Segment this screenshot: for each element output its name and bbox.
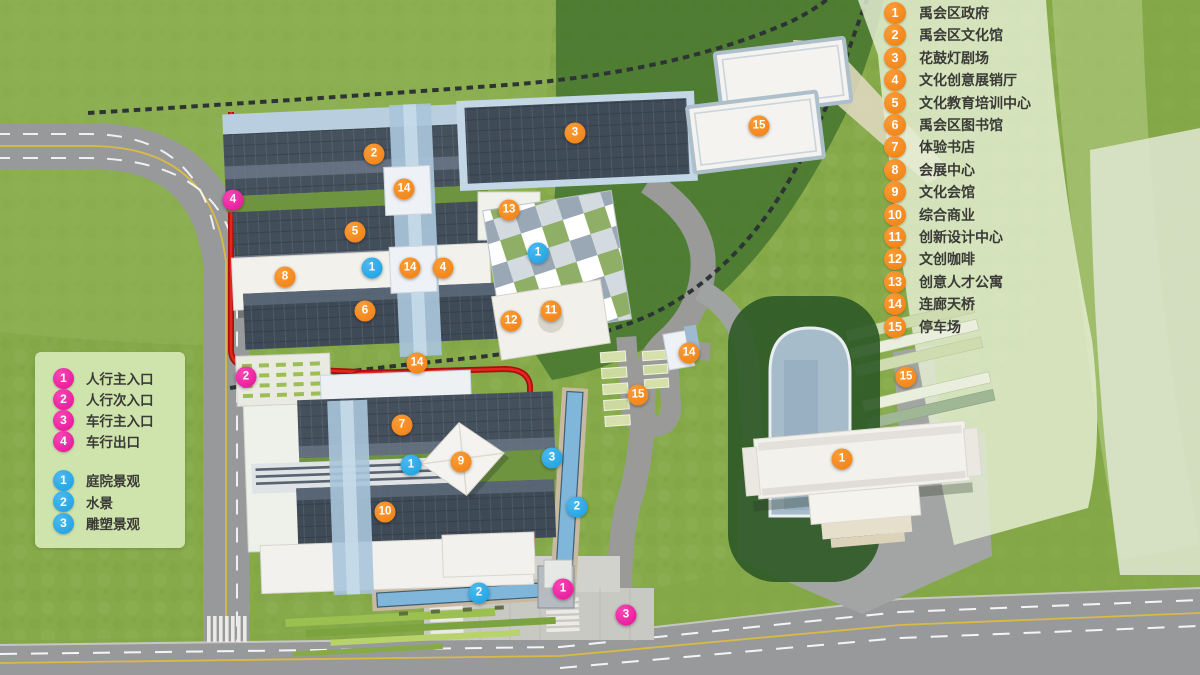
building-legend-item-13: 13创意人才公寓 [884,271,1003,293]
building-legend-item-4: 4文化创意展销厅 [884,69,1017,91]
legend-number-badge: 4 [53,431,74,452]
legend-item-label: 创新设计中心 [919,227,1003,247]
map-marker-building-15: 15 [749,116,770,137]
legend-item-label: 人行主入口 [86,368,154,388]
legend-number-badge: 10 [884,204,906,226]
map-marker-building-1: 1 [832,449,853,470]
map-marker-entrance-3: 3 [616,605,637,626]
map-marker-entrance-2: 2 [236,367,257,388]
legend-number-badge: 9 [884,181,906,203]
legend-number-badge: 11 [884,226,906,248]
map-marker-building-14: 14 [400,258,421,279]
building-legend-item-12: 12文创咖啡 [884,248,975,270]
map-marker-building-4: 4 [433,258,454,279]
map-marker-building-15: 15 [896,367,917,388]
legend-number-badge: 6 [884,114,906,136]
entrance-landscape-legend: 1人行主入口2人行次入口3车行主入口4车行出口1庭院景观2水景3雕塑景观 [35,352,185,548]
legend-number-badge: 2 [53,389,74,410]
building-legend-item-7: 7体验书店 [884,136,975,158]
map-marker-building-7: 7 [392,415,413,436]
building-legend-item-3: 3花鼓灯剧场 [884,47,989,69]
map-marker-building-13: 13 [499,200,520,221]
map-marker-building-3: 3 [565,123,586,144]
building-legend-item-1: 1禹会区政府 [884,2,989,24]
map-marker-building-14: 14 [394,179,415,200]
map-marker-landscape-1: 1 [401,455,422,476]
map-marker-building-2: 2 [364,144,385,165]
legend-item-label: 创意人才公寓 [919,272,1003,292]
legend-item-label: 水景 [86,492,113,512]
entrance-legend-item-1: 1人行主入口 [53,368,154,389]
legend-item-label: 综合商业 [919,205,975,225]
building-legend-item-6: 6禹会区图书馆 [884,114,1003,136]
legend-item-label: 文创咖啡 [919,249,975,269]
building-legend-item-8: 8会展中心 [884,159,975,181]
legend-number-badge: 2 [884,24,906,46]
landscape-legend-item-2: 2水景 [53,491,113,512]
map-marker-building-9: 9 [451,452,472,473]
map-marker-building-11: 11 [541,301,562,322]
entrance-legend-item-2: 2人行次入口 [53,389,154,410]
legend-item-label: 禹会区文化馆 [919,25,1003,45]
legend-number-badge: 15 [884,316,906,338]
map-marker-building-8: 8 [275,267,296,288]
legend-number-badge: 4 [884,69,906,91]
map-marker-building-14: 14 [407,353,428,374]
map-marker-landscape-2: 2 [469,583,490,604]
legend-number-badge: 3 [53,513,74,534]
legend-number-badge: 12 [884,248,906,270]
map-marker-building-10: 10 [375,502,396,523]
map-marker-landscape-3: 3 [542,448,563,469]
legend-number-badge: 5 [884,92,906,114]
map-marker-building-5: 5 [345,222,366,243]
building-legend-item-10: 10综合商业 [884,204,975,226]
legend-number-badge: 7 [884,136,906,158]
legend-number-badge: 3 [53,410,74,431]
map-marker-entrance-4: 4 [223,190,244,211]
legend-number-badge: 1 [53,470,74,491]
building-legend-item-2: 2禹会区文化馆 [884,24,1003,46]
legend-item-label: 体验书店 [919,137,975,157]
legend-item-label: 停车场 [919,317,961,337]
entrance-legend-item-3: 3车行主入口 [53,410,154,431]
map-marker-landscape-2: 2 [567,497,588,518]
map-marker-building-12: 12 [501,311,522,332]
legend-item-label: 文化会馆 [919,182,975,202]
building-legend-item-11: 11创新设计中心 [884,226,1003,248]
map-marker-landscape-1: 1 [362,258,383,279]
legend-number-badge: 8 [884,159,906,181]
legend-item-label: 人行次入口 [86,389,154,409]
landscape-legend-item-3: 3雕塑景观 [53,513,140,534]
building-legend-item-5: 5文化教育培训中心 [884,92,1031,114]
site-plan-page: 2315141351448611121414157910151421311132… [0,0,1200,675]
map-marker-entrance-1: 1 [553,579,574,600]
legend-number-badge: 1 [53,368,74,389]
legend-item-label: 文化创意展销厅 [919,70,1017,90]
legend-item-label: 雕塑景观 [86,513,140,533]
legend-item-label: 庭院景观 [86,470,140,490]
legend-item-label: 文化教育培训中心 [919,93,1031,113]
legend-item-label: 禹会区图书馆 [919,115,1003,135]
legend-number-badge: 1 [884,2,906,24]
map-marker-building-14: 14 [679,343,700,364]
legend-item-label: 车行主入口 [86,410,154,430]
legend-number-badge: 14 [884,293,906,315]
legend-number-badge: 2 [53,491,74,512]
map-marker-building-15: 15 [628,385,649,406]
building-legend-item-9: 9文化会馆 [884,181,975,203]
legend-number-badge: 3 [884,47,906,69]
legend-number-badge: 13 [884,271,906,293]
legend-item-label: 会展中心 [919,160,975,180]
entrance-legend-item-4: 4车行出口 [53,431,140,452]
legend-item-label: 花鼓灯剧场 [919,48,989,68]
map-marker-building-6: 6 [355,301,376,322]
legend-item-label: 车行出口 [86,431,140,451]
legend-item-label: 连廊天桥 [919,294,975,314]
building-legend-item-15: 15停车场 [884,316,961,338]
landscape-legend-item-1: 1庭院景观 [53,470,140,491]
map-marker-landscape-1: 1 [528,243,549,264]
legend-item-label: 禹会区政府 [919,3,989,23]
building-legend-item-14: 14连廊天桥 [884,293,975,315]
